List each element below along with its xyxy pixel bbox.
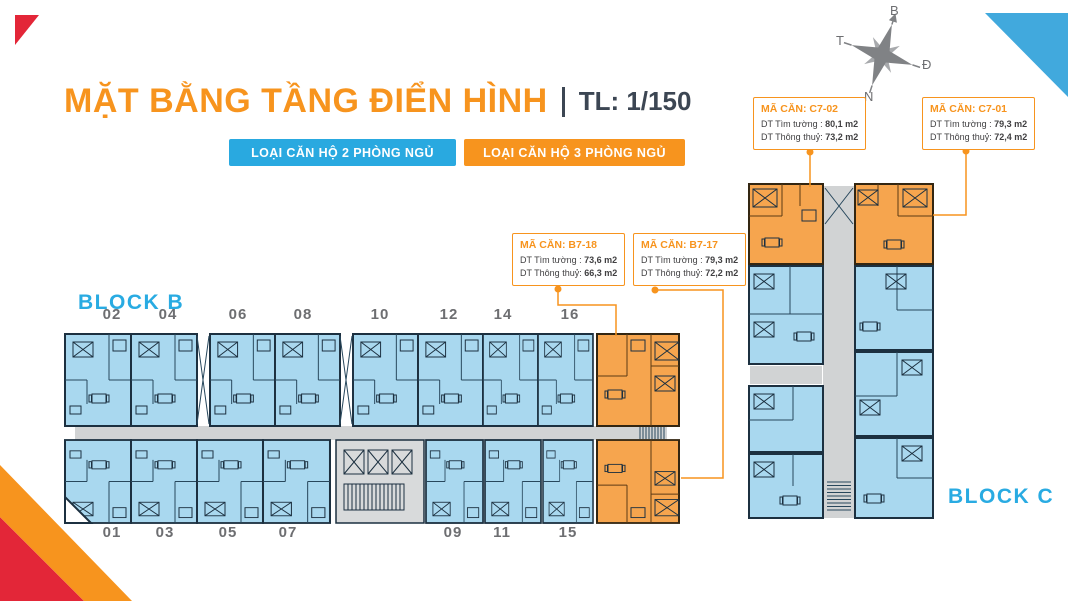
block-b-top-units: [65, 334, 593, 426]
block-c-right-units: [855, 266, 933, 518]
block-b-plan: [65, 334, 679, 523]
floor-plan-page: MẶT BẰNG TẦNG ĐIỂN HÌNH TL: 1/150 LOẠI C…: [0, 0, 1068, 601]
net-area-line: DT Thông thuỷ: 66,3 m2: [520, 267, 617, 280]
gross-area-line: DT Tìm tường : 79,3 m2: [641, 254, 738, 267]
unit-card-c7-02[interactable]: MÃ CĂN: C7-02 DT Tìm tường : 80,1 m2 DT …: [753, 97, 866, 150]
net-area-line: DT Thông thuỷ: 72,4 m2: [930, 131, 1027, 144]
block-c-left-units: [749, 266, 823, 518]
net-area-line: DT Thông thuỷ: 73,2 m2: [761, 131, 858, 144]
block-b-bottom-units: [65, 440, 593, 523]
block-b-corridor: [75, 426, 667, 440]
unit-code: MÃ CĂN: C7-02: [761, 102, 858, 117]
block-c-plan: [749, 184, 933, 518]
block-c-corridor: [823, 186, 855, 518]
floor-plan: [0, 0, 1068, 601]
unit-card-c7-01[interactable]: MÃ CĂN: C7-01 DT Tìm tường : 79,3 m2 DT …: [922, 97, 1035, 150]
gross-area-line: DT Tìm tường : 80,1 m2: [761, 118, 858, 131]
unit-code: MÃ CĂN: C7-01: [930, 102, 1027, 117]
unit-b7-17: [597, 440, 679, 523]
unit-c7-02: [749, 184, 823, 264]
gross-area-line: DT Tìm tường : 73,6 m2: [520, 254, 617, 267]
unit-code: MÃ CĂN: B7-18: [520, 238, 617, 253]
unit-code: MÃ CĂN: B7-17: [641, 238, 738, 253]
net-area-line: DT Thông thuỷ: 72,2 m2: [641, 267, 738, 280]
unit-c7-01: [855, 184, 933, 264]
unit-card-b7-17[interactable]: MÃ CĂN: B7-17 DT Tìm tường : 79,3 m2 DT …: [633, 233, 746, 286]
unit-card-b7-18[interactable]: MÃ CĂN: B7-18 DT Tìm tường : 73,6 m2 DT …: [512, 233, 625, 286]
unit-b7-18: [597, 334, 679, 426]
gross-area-line: DT Tìm tường : 79,3 m2: [930, 118, 1027, 131]
block-b-core: [336, 440, 424, 523]
